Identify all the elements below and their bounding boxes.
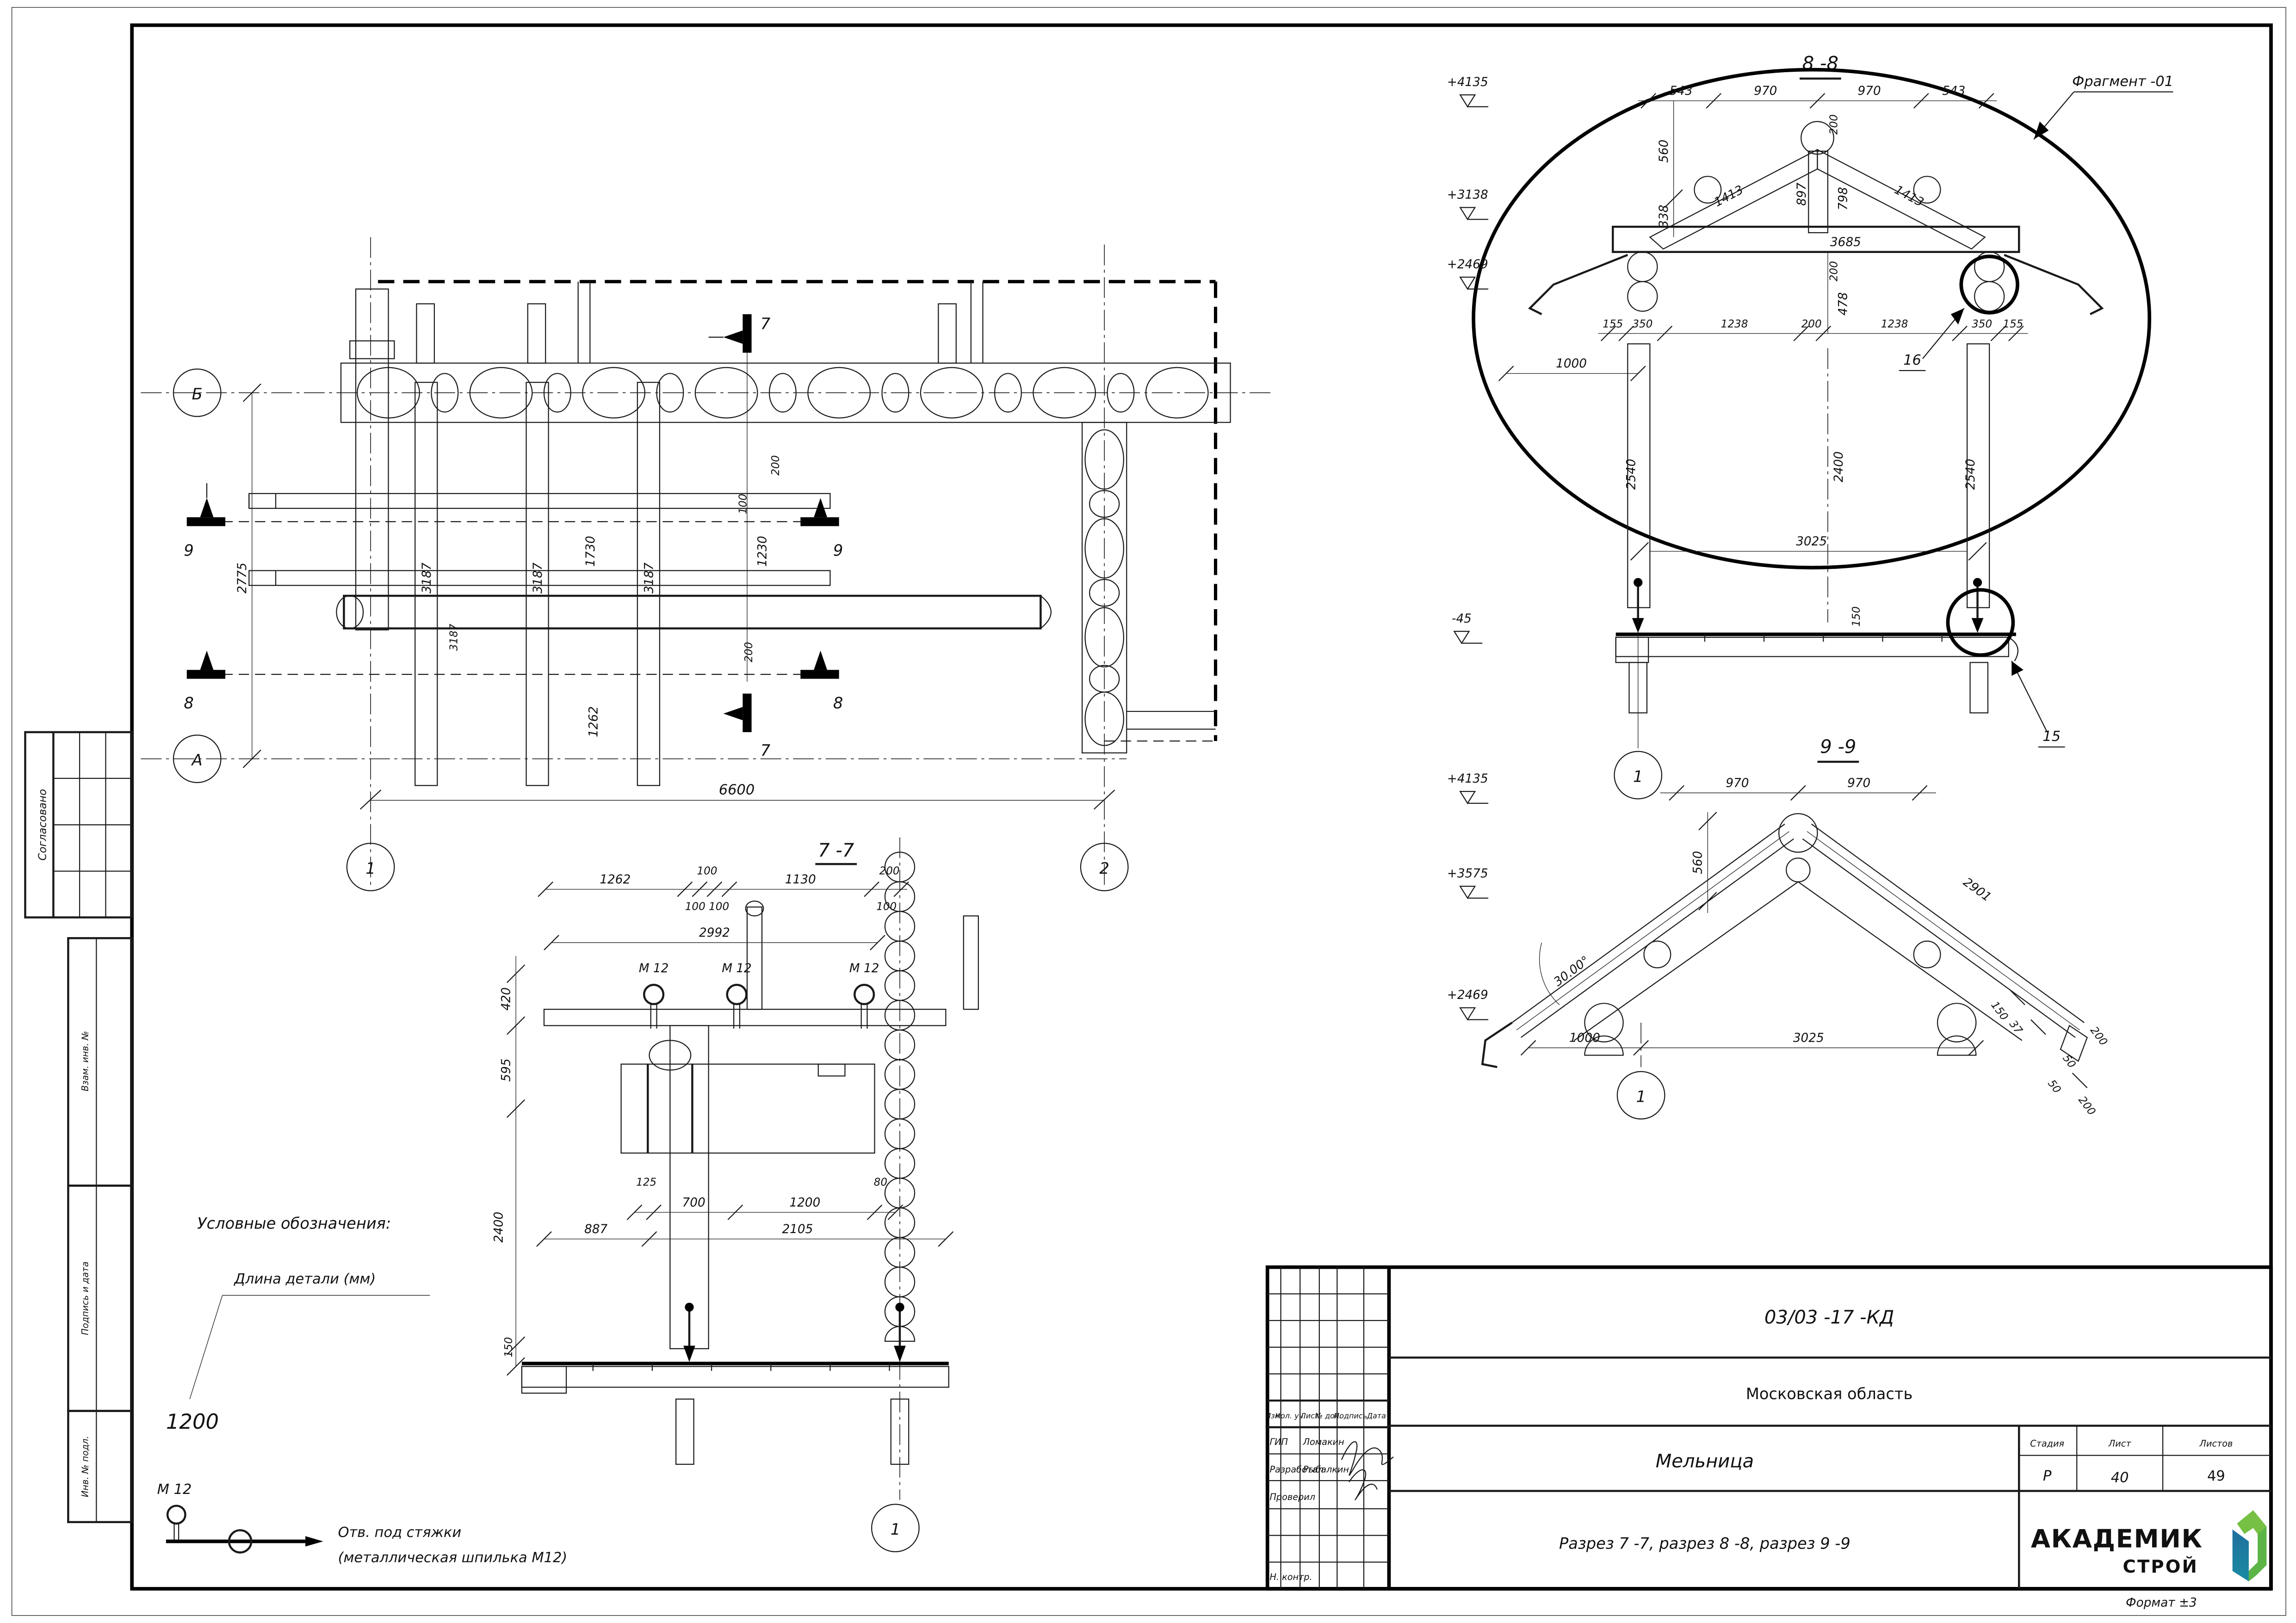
sheet-frame: Формат ±3: [12, 7, 2286, 1616]
title-block-right: 03/03 -17 -КД Московская область Мельниц…: [1389, 1307, 2271, 1589]
dim-200-top: 200: [770, 455, 782, 475]
s88-top-dims: 543 970 970 543 200: [1638, 84, 1997, 135]
plan-view: Б А: [141, 237, 1272, 891]
s88-spike-right: [1972, 578, 1984, 633]
logo-line2: СТРОЙ: [2123, 1555, 2198, 1577]
title-block: Изм. Кол. уч. Лист № док. Подпись Дата Г…: [1265, 1267, 2271, 1589]
s88-fragment-callout: Фрагмент -01: [2034, 74, 2173, 139]
s88-d478: 478: [1837, 292, 1850, 315]
legend-hole-caption-1: Отв. под стяжки: [338, 1524, 462, 1541]
agreed-label: Согласовано: [37, 789, 49, 861]
row-dev-name: Рыбалкин: [1303, 1464, 1349, 1475]
row-check-label: Проверил: [1269, 1492, 1315, 1502]
title-block-left: Изм. Кол. уч. Лист № док. Подпись Дата Г…: [1265, 1267, 1393, 1589]
podp-label: Подпись и дата: [80, 1261, 91, 1335]
s77-d2992: 2992: [699, 926, 730, 940]
plan-bubble-1: 1: [365, 859, 375, 877]
sidebar-stamps: Согласовано Взам. инв. № Подпись и дата …: [25, 732, 132, 1522]
s99-title: 9 -9: [1820, 736, 1856, 758]
object-name: Мельница: [1656, 1450, 1754, 1472]
cut7-top-label: 7: [761, 315, 771, 333]
inv-box: Инв. № подл.: [68, 1411, 132, 1522]
s88-levels: +4135 +3138 +2469 -45: [1447, 75, 1488, 643]
s99-top-dims: 970 970: [1660, 776, 1936, 800]
legend-title: Условные обозначения:: [197, 1214, 391, 1232]
stage-value: Р: [2043, 1468, 2052, 1484]
s88-row-350a: 350: [1632, 318, 1652, 330]
plan-bubble-2: 2: [1100, 859, 1109, 877]
s88-row-1238b: 1238: [1881, 318, 1908, 330]
s99-d1000: 1000: [1569, 1031, 1600, 1045]
legend-bolt-symbol: [166, 1506, 323, 1553]
vzam-label: Взам. инв. №: [80, 1031, 91, 1092]
s99-lev-2469: +2469: [1447, 988, 1488, 1002]
s77-d887: 887: [584, 1222, 607, 1236]
s77-m12-1: М 12: [639, 962, 668, 975]
s77-d100: 100: [697, 865, 717, 877]
plan-beams-3187: 3187 3187 3187: [415, 383, 660, 786]
s77-center-post: [670, 1025, 708, 1349]
s88-lev-45: -45: [1452, 612, 1472, 626]
axis-a: А: [191, 751, 203, 769]
s88-r1413b: 1413: [1892, 183, 1926, 210]
dim-200-low: 200: [743, 642, 755, 662]
s99-lev-3575: +3575: [1447, 867, 1488, 881]
cut7-bottom-label: 7: [761, 741, 771, 759]
section-9-9: 9 -9 +4135 +3575 +2469 970 970: [1447, 736, 2110, 1119]
legend-length-label: Длина детали (мм): [233, 1271, 376, 1287]
s88-callout15: 15: [2011, 661, 2065, 747]
s77-log-block: [621, 1040, 875, 1153]
cut8-right-label: 8: [833, 694, 843, 712]
s88-callout16-label: 16: [1903, 352, 1921, 368]
s88-d543a: 543: [1670, 84, 1693, 98]
cut9-right-label: 9: [833, 542, 843, 560]
dim-6600: 6600: [719, 782, 755, 798]
dim-3187-3: 3187: [642, 562, 656, 593]
section-7-7: 7 -7 1262 100 1130 200 100 100 100 2992 …: [492, 837, 978, 1551]
s99-dims: 2901 560 30.00° 150 37 50 50 200 200 100…: [1521, 812, 2110, 1117]
row-gip-name: Ломакин: [1303, 1437, 1344, 1447]
s88-row-350b: 350: [1972, 318, 1992, 330]
s77-floor: [522, 1364, 949, 1393]
s77-d125: 125: [636, 1176, 656, 1188]
s99-levels: +4135 +3575 +2469: [1447, 772, 1488, 1020]
s88-d970b: 970: [1858, 84, 1881, 98]
dim-1730: 1730: [584, 536, 598, 567]
dim-1230: 1230: [756, 536, 770, 567]
dim-100: 100: [737, 494, 749, 514]
s88-d2400: 2400: [1832, 451, 1846, 482]
inv-label: Инв. № подл.: [80, 1436, 91, 1497]
s88-row-155a: 155: [1603, 318, 1623, 330]
podp-box: Подпись и дата: [68, 1185, 132, 1411]
s88-row-1238a: 1238: [1721, 318, 1748, 330]
cut-mark-7-bottom: 7: [724, 694, 771, 760]
plan-thick-beam: [336, 596, 1051, 628]
row-gip-label: ГИП: [1269, 1437, 1288, 1447]
s99-d50b: 50: [2045, 1078, 2063, 1096]
s99-d970b: 970: [1847, 776, 1870, 790]
s88-callout16-circle: [1961, 256, 2018, 313]
s77-d1130: 1130: [785, 873, 816, 887]
plan-col1-log: [356, 289, 388, 630]
agreed-table: Согласовано: [25, 732, 132, 918]
s88-bubble: 1: [1633, 767, 1643, 785]
s88-callout15-label: 15: [2042, 728, 2061, 745]
plan-log-wall-2: [1082, 422, 1215, 753]
logo-mark: [2233, 1510, 2267, 1581]
s77-d150: 150: [503, 1337, 515, 1358]
s99-d970a: 970: [1726, 776, 1749, 790]
dim-3187-small: 3187: [448, 623, 460, 651]
col-date: Дата: [1366, 1412, 1386, 1420]
s88-d200-top: 200: [1828, 114, 1840, 135]
dim-1262: 1262: [587, 706, 600, 737]
s99-angle: 30.00°: [1551, 954, 1592, 989]
s88-truss: 1413 1413 897 798 3685 200 560 338 478: [1613, 101, 2019, 333]
s88-lev-3138: +3138: [1447, 188, 1488, 202]
sheet-label: Лист: [2108, 1438, 2132, 1449]
s77-d100100: 100 100: [685, 901, 729, 913]
cut-mark-9-left: 9: [184, 483, 225, 560]
s77-d420: 420: [499, 987, 513, 1011]
s77-d2105: 2105: [782, 1222, 813, 1236]
s88-d2540a: 2540: [1624, 459, 1638, 490]
s77-bubble: 1: [891, 1520, 900, 1538]
logo-line1: АКАДЕМИК: [2031, 1524, 2203, 1553]
s88-d543b: 543: [1942, 84, 1965, 98]
region: Московская область: [1746, 1385, 1912, 1403]
s77-top-dims: 1262 100 1130 200 100 100 100 2992: [538, 865, 909, 950]
s88-lev-2469: +2469: [1447, 258, 1488, 272]
signature: [1342, 1442, 1393, 1500]
section-8-8: 8 -8 Фрагмент -01 +4135 +3138 +2469 -45: [1447, 53, 2173, 799]
s99-d560: 560: [1691, 851, 1705, 874]
s99-roof: [1482, 814, 2087, 1067]
legend-hole-caption-2: (металлическая шпилька М12): [338, 1549, 568, 1566]
col-sign: Подпись: [1334, 1412, 1367, 1420]
logo: АКАДЕМИК СТРОЙ: [2031, 1510, 2266, 1581]
s88-d3025: 3025: [1796, 535, 1827, 549]
legend-bolt-label: М 12: [157, 1481, 192, 1498]
sheets-label: Листов: [2199, 1438, 2233, 1449]
s88-d150: 150: [1850, 606, 1863, 627]
s88-d338: 338: [1657, 205, 1671, 228]
s99-d3025: 3025: [1793, 1031, 1824, 1045]
s99-d200a: 200: [2088, 1024, 2110, 1048]
s77-m12-3: М 12: [849, 962, 879, 975]
s99-lev-4135: +4135: [1447, 772, 1488, 786]
s77-spike-left: [683, 1303, 695, 1362]
s77-d595: 595: [499, 1058, 513, 1081]
s88-fragment-label: Фрагмент -01: [2072, 74, 2173, 90]
s88-d897: 897: [1795, 182, 1809, 205]
s88-lev-4135: +4135: [1447, 75, 1488, 89]
drawing-sheet: Формат ±3 Согласовано Взам. инв. № Подпи…: [0, 0, 2296, 1623]
s99-d37: 37: [2007, 1018, 2025, 1037]
s99-bubble: 1: [1636, 1087, 1646, 1105]
s88-d2540b: 2540: [1964, 459, 1978, 490]
s77-left-dims: 420 595 2400 150: [492, 956, 525, 1376]
s88-d3685: 3685: [1830, 235, 1861, 249]
vzam-box: Взам. инв. №: [68, 938, 132, 1185]
row-ncontr-label: Н. контр.: [1269, 1572, 1312, 1582]
s99-d2901: 2901: [1961, 875, 1994, 905]
s77-d1200: 1200: [790, 1196, 821, 1210]
cut8-left-label: 8: [184, 694, 193, 712]
s77-d80: 80: [874, 1176, 887, 1188]
s77-log-stack: [885, 837, 915, 1500]
format-note: Формат ±3: [2126, 1596, 2197, 1610]
s88-posts: 2540 2540 2400 3025 150: [1624, 344, 1989, 627]
s99-d200b: 200: [2076, 1094, 2098, 1118]
s77-spike-right: [894, 1303, 906, 1362]
sheet-value: 40: [2111, 1469, 2129, 1486]
cut-mark-8-right: 8: [800, 651, 843, 712]
s77-d200: 200: [879, 865, 900, 877]
axis-b: Б: [192, 385, 203, 403]
s77-title: 7 -7: [818, 840, 854, 861]
cut9-left-label: 9: [184, 542, 193, 560]
dim-3187-1: 3187: [420, 562, 434, 593]
s88-d798: 798: [1837, 187, 1850, 210]
s88-d200-beam: 200: [1828, 261, 1840, 281]
s77-d700: 700: [682, 1196, 706, 1210]
sheets-value: 49: [2207, 1468, 2225, 1484]
s77-d2400: 2400: [492, 1212, 506, 1243]
legend-length-value: 1200: [166, 1409, 219, 1434]
s88-d1000: 1000: [1556, 357, 1587, 371]
s99-d50a: 50: [2060, 1052, 2078, 1070]
s88-row-200: 200: [1801, 318, 1822, 330]
cut-mark-8-left: 8: [184, 651, 225, 712]
dim-3187-2: 3187: [531, 562, 545, 593]
s88-row-155b: 155: [2003, 318, 2023, 330]
stage-label: Стадия: [2030, 1438, 2064, 1449]
s88-d560: 560: [1657, 140, 1671, 163]
sheet-title: Разрез 7 -7, разрез 8 -8, разрез 9 -9: [1559, 1534, 1850, 1552]
s77-d1262: 1262: [600, 873, 631, 887]
cut-mark-9-right: 9: [800, 498, 843, 560]
s88-r1413a: 1413: [1712, 183, 1745, 210]
s88-d970a: 970: [1754, 84, 1777, 98]
s77-bolts: М 12 М 12 М 12: [639, 962, 879, 1029]
dim-2775: 2775: [235, 562, 249, 593]
doc-code: 03/03 -17 -КД: [1764, 1307, 1894, 1328]
legend: Условные обозначения: Длина детали (мм) …: [157, 1214, 568, 1566]
